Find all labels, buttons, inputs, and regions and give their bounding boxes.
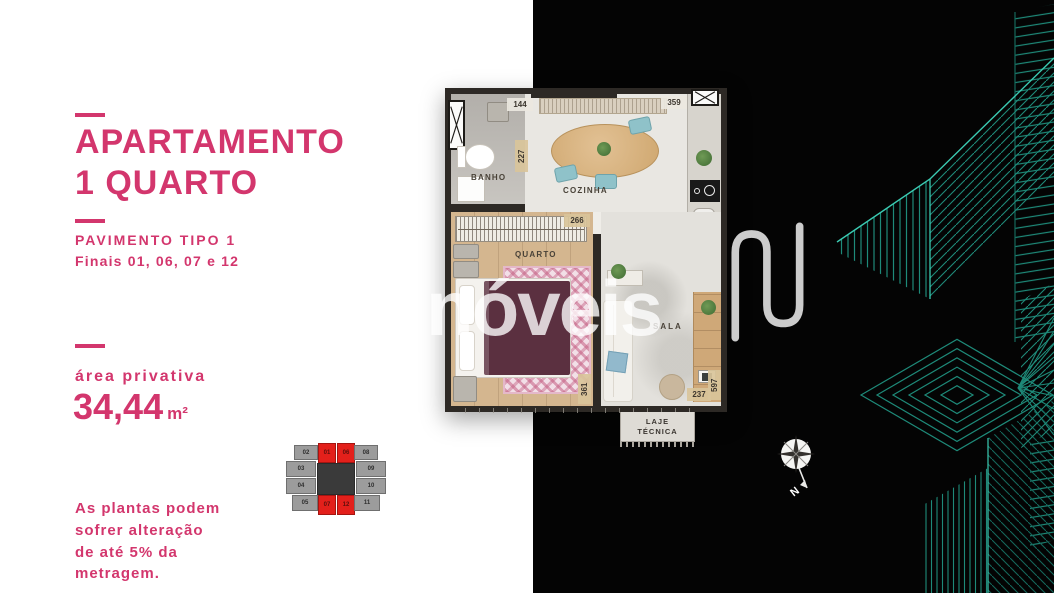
keyplan-unit-04: 04 — [286, 478, 316, 494]
title-line-1: APARTAMENTO — [75, 122, 345, 163]
shower-fixture — [487, 102, 509, 122]
accent-dash-top — [75, 113, 105, 117]
keyplan-unit-06-highlighted: 06 — [337, 443, 355, 463]
keyplan-unit-12-highlighted: 12 — [337, 495, 355, 515]
area-unit: m² — [167, 404, 188, 423]
compass-north-label: N — [788, 485, 802, 499]
keyplan-unit-02: 02 — [294, 445, 318, 460]
floor-type-subtitle: PAVIMENTO TIPO 1 Finais 01, 06, 07 e 12 — [75, 232, 239, 269]
keyplan-unit-07-highlighted: 07 — [318, 495, 336, 515]
keyplan-unit-05: 05 — [292, 495, 318, 511]
page-title: APARTAMENTO 1 QUARTO — [75, 122, 345, 204]
private-area-label: área privativa — [75, 368, 206, 386]
dimension-144: 144 — [507, 98, 533, 111]
nightstand — [453, 244, 479, 259]
keyplan-core — [317, 463, 355, 495]
private-area-value: 34,44m² — [73, 386, 188, 428]
bathroom-label: BANHO — [471, 173, 506, 182]
side-cabinet — [453, 376, 477, 402]
area-number: 34,44 — [73, 386, 163, 427]
unit-endings-label: Finais 01, 06, 07 e 12 — [75, 253, 239, 269]
dimension-227: 227 — [515, 140, 528, 172]
keyplan-unit-01-highlighted: 01 — [318, 443, 336, 463]
accent-dash-area — [75, 344, 105, 348]
keyplan-unit-09: 09 — [356, 461, 386, 477]
floor-type-label: PAVIMENTO TIPO 1 — [75, 232, 239, 248]
keyplan-unit-11: 11 — [354, 495, 380, 511]
title-line-2: 1 QUARTO — [75, 163, 345, 204]
compass-rose: N — [770, 430, 826, 500]
marketing-slide: APARTAMENTO 1 QUARTO PAVIMENTO TIPO 1 Fi… — [0, 0, 1054, 593]
toilet-icon — [465, 144, 495, 170]
keyplan-unit-10: 10 — [356, 478, 386, 494]
building-wireframe-graphic — [533, 0, 1054, 593]
nightstand — [453, 261, 479, 278]
accent-dash-mid — [75, 219, 105, 223]
bathroom-window-icon — [448, 100, 465, 150]
disclaimer-text: As plantas podem sofrer alteração de até… — [75, 498, 220, 585]
keyplan-diagram: 02 03 04 05 01 06 07 12 08 09 10 11 — [280, 440, 390, 518]
keyplan-unit-03: 03 — [286, 461, 316, 477]
keyplan-unit-08: 08 — [354, 445, 378, 460]
